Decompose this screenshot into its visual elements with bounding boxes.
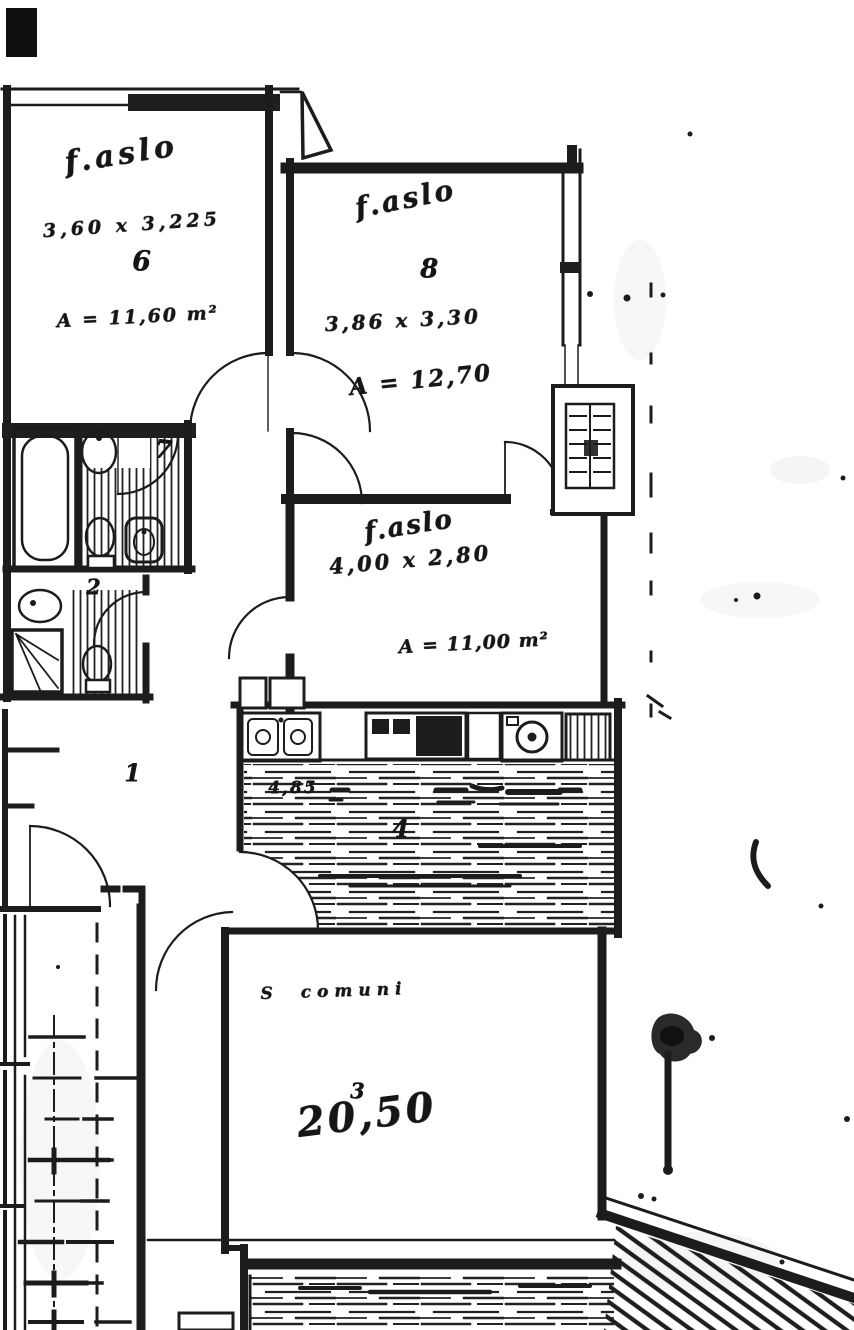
specks xyxy=(56,132,850,1265)
kitchen-counter xyxy=(240,678,616,761)
washbasin2-icon xyxy=(19,590,61,622)
bath-small-number: 2 xyxy=(86,574,101,599)
terrace-hatch xyxy=(250,1226,854,1330)
kitchen-number: 4 xyxy=(392,814,409,843)
washing-machine-icon xyxy=(502,713,562,761)
kitchen-note: 4,85 xyxy=(268,778,317,798)
corner-black-box xyxy=(6,8,37,57)
fridge-icon xyxy=(566,714,610,760)
floorplan-scan: f.aslo 3,60 x 3,225 6 A = 11,60 m² f.asl… xyxy=(0,0,854,1330)
pen-stroke xyxy=(753,842,768,886)
bathtub-icon xyxy=(14,428,76,568)
stove-icon xyxy=(366,713,466,759)
shower-icon xyxy=(12,630,62,692)
hall-number: 1 xyxy=(124,758,141,787)
room8-number: 8 xyxy=(420,254,438,284)
kitchen-sink-icon xyxy=(242,713,320,761)
washbasin-icon xyxy=(82,431,116,473)
radiator-icon xyxy=(553,386,633,514)
room6-number: 6 xyxy=(132,246,151,277)
bath-main-number: 7 xyxy=(153,434,173,465)
